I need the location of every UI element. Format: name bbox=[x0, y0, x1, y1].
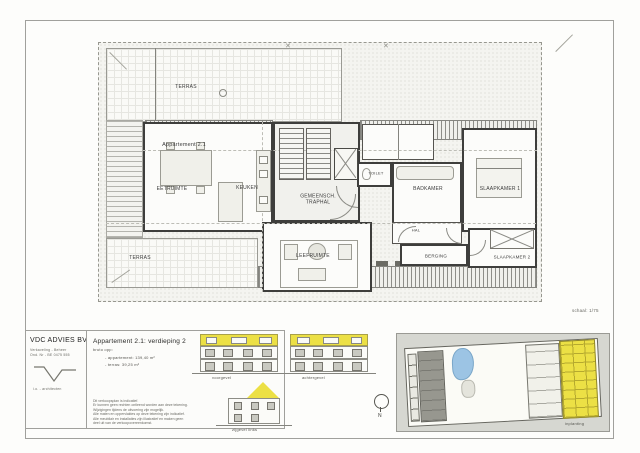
label-keuken: KEUKEN bbox=[236, 186, 258, 192]
elevation-rear-label: achtergevel bbox=[302, 376, 325, 381]
elevation-front: voorgevel bbox=[200, 334, 278, 380]
roof-vent-symbol bbox=[219, 89, 227, 97]
scale-label: schaal: 1/75 bbox=[572, 308, 599, 313]
roof-hatch-strip bbox=[106, 120, 143, 238]
label-leefruimte: LEEFRUIMTE bbox=[296, 254, 330, 260]
company-logo-icon bbox=[32, 361, 78, 385]
label-slaapkamer2: SLAAPKAMER 2 bbox=[494, 254, 531, 259]
drawing-sheet: ✕ ✕ bbox=[0, 0, 640, 453]
label-slaapkamer1: SLAAPKAMER 1 bbox=[480, 187, 520, 193]
logo-caption: i.o. - architecten bbox=[33, 387, 62, 391]
north-arrow: N bbox=[372, 394, 392, 422]
roof-cross-mark: ✕ bbox=[383, 43, 389, 51]
elevation-side-gable bbox=[246, 382, 280, 399]
ground-line bbox=[192, 373, 286, 374]
elevation-side-label: zijgevel links bbox=[232, 428, 257, 433]
north-arrow-circle bbox=[374, 394, 389, 409]
elevation-front-topfloor bbox=[200, 334, 278, 346]
module-line bbox=[106, 223, 536, 224]
title-block: VDC ADVIES BV Verkaveling - Beheer Ond. … bbox=[25, 330, 88, 429]
terrace-bottom bbox=[106, 238, 258, 288]
company-sub2: Ond. Nr - BE 0475 555 bbox=[30, 353, 70, 357]
dining-chair bbox=[196, 186, 205, 194]
elevation-front-midfloor bbox=[200, 346, 278, 359]
terrace-top bbox=[106, 48, 342, 122]
label-traphal: GEMEENSCH. TRAPHAL bbox=[300, 194, 336, 206]
floor-plan: ✕ ✕ bbox=[0, 0, 640, 320]
kitchen-hob bbox=[259, 170, 268, 178]
area-line1: - appartement: 139,40 m² bbox=[105, 356, 155, 361]
siteplan-building-gray bbox=[525, 343, 563, 419]
elevation-front-groundfloor bbox=[200, 359, 278, 372]
label-toilet: TOILET bbox=[368, 172, 383, 177]
elevation-rear-topfloor bbox=[290, 334, 368, 346]
north-label: N bbox=[378, 414, 382, 420]
north-arrow-stem bbox=[380, 407, 381, 412]
ground-line bbox=[282, 373, 376, 374]
terrace-divider bbox=[155, 48, 156, 120]
label-eetruimte: EETRUIMTE bbox=[157, 187, 188, 193]
kitchen-sink bbox=[259, 156, 268, 164]
area-line2: - terras: 39,25 m² bbox=[105, 363, 139, 368]
label-terras-top: TERRAS bbox=[175, 85, 196, 91]
bed-pillow-line bbox=[476, 168, 522, 169]
siteplan-pool-path bbox=[461, 379, 476, 398]
company-sub1: Verkaveling - Beheer bbox=[30, 348, 67, 352]
siteplan-plot bbox=[404, 338, 602, 427]
elevation-side: zijgevel links bbox=[222, 382, 286, 432]
elevation-rear-midfloor bbox=[290, 346, 368, 359]
siteplan-building-highlight bbox=[559, 339, 599, 419]
label-traphal-line2: TRAPHAL bbox=[300, 200, 336, 206]
siteplan-pool bbox=[451, 348, 475, 381]
siteplan-label: inplanting bbox=[565, 422, 584, 427]
siteplan-panel: inplanting bbox=[396, 333, 610, 432]
plan-title: Appartement 2.1: verdieping 2 bbox=[93, 338, 186, 345]
lift-shaft bbox=[334, 148, 358, 180]
siteplan-garages bbox=[417, 350, 447, 422]
dining-table bbox=[160, 150, 212, 186]
elevation-front-label: voorgevel bbox=[212, 376, 231, 381]
skylight-cross-icon bbox=[491, 230, 533, 248]
label-berging: BERGING bbox=[425, 253, 447, 258]
bathtub bbox=[396, 166, 454, 180]
plan-subtitle: bruto opp: bbox=[93, 348, 113, 353]
label-badkamer: BADKAMER bbox=[413, 187, 443, 193]
sofa-seat bbox=[338, 244, 352, 260]
terrace-corner-diagonal bbox=[555, 34, 573, 52]
kitchen-appliance bbox=[259, 196, 268, 204]
sofa-seat bbox=[298, 268, 326, 281]
lift-cross-icon bbox=[335, 149, 356, 178]
elevation-rear: achtergevel bbox=[290, 334, 368, 380]
label-terras-bottom: TERRAS bbox=[129, 256, 150, 262]
stair-flight bbox=[306, 128, 331, 180]
skylight-box bbox=[490, 229, 534, 249]
elevation-rear-groundfloor bbox=[290, 359, 368, 372]
label-apartment: Appartement 2.1 bbox=[162, 142, 206, 148]
company-name: VDC ADVIES BV bbox=[30, 337, 87, 345]
elevation-side-body bbox=[228, 398, 280, 424]
ground-line bbox=[216, 425, 292, 426]
stair-flight bbox=[279, 128, 304, 180]
label-hal: HAL bbox=[412, 229, 420, 234]
closet-divider bbox=[398, 124, 399, 160]
